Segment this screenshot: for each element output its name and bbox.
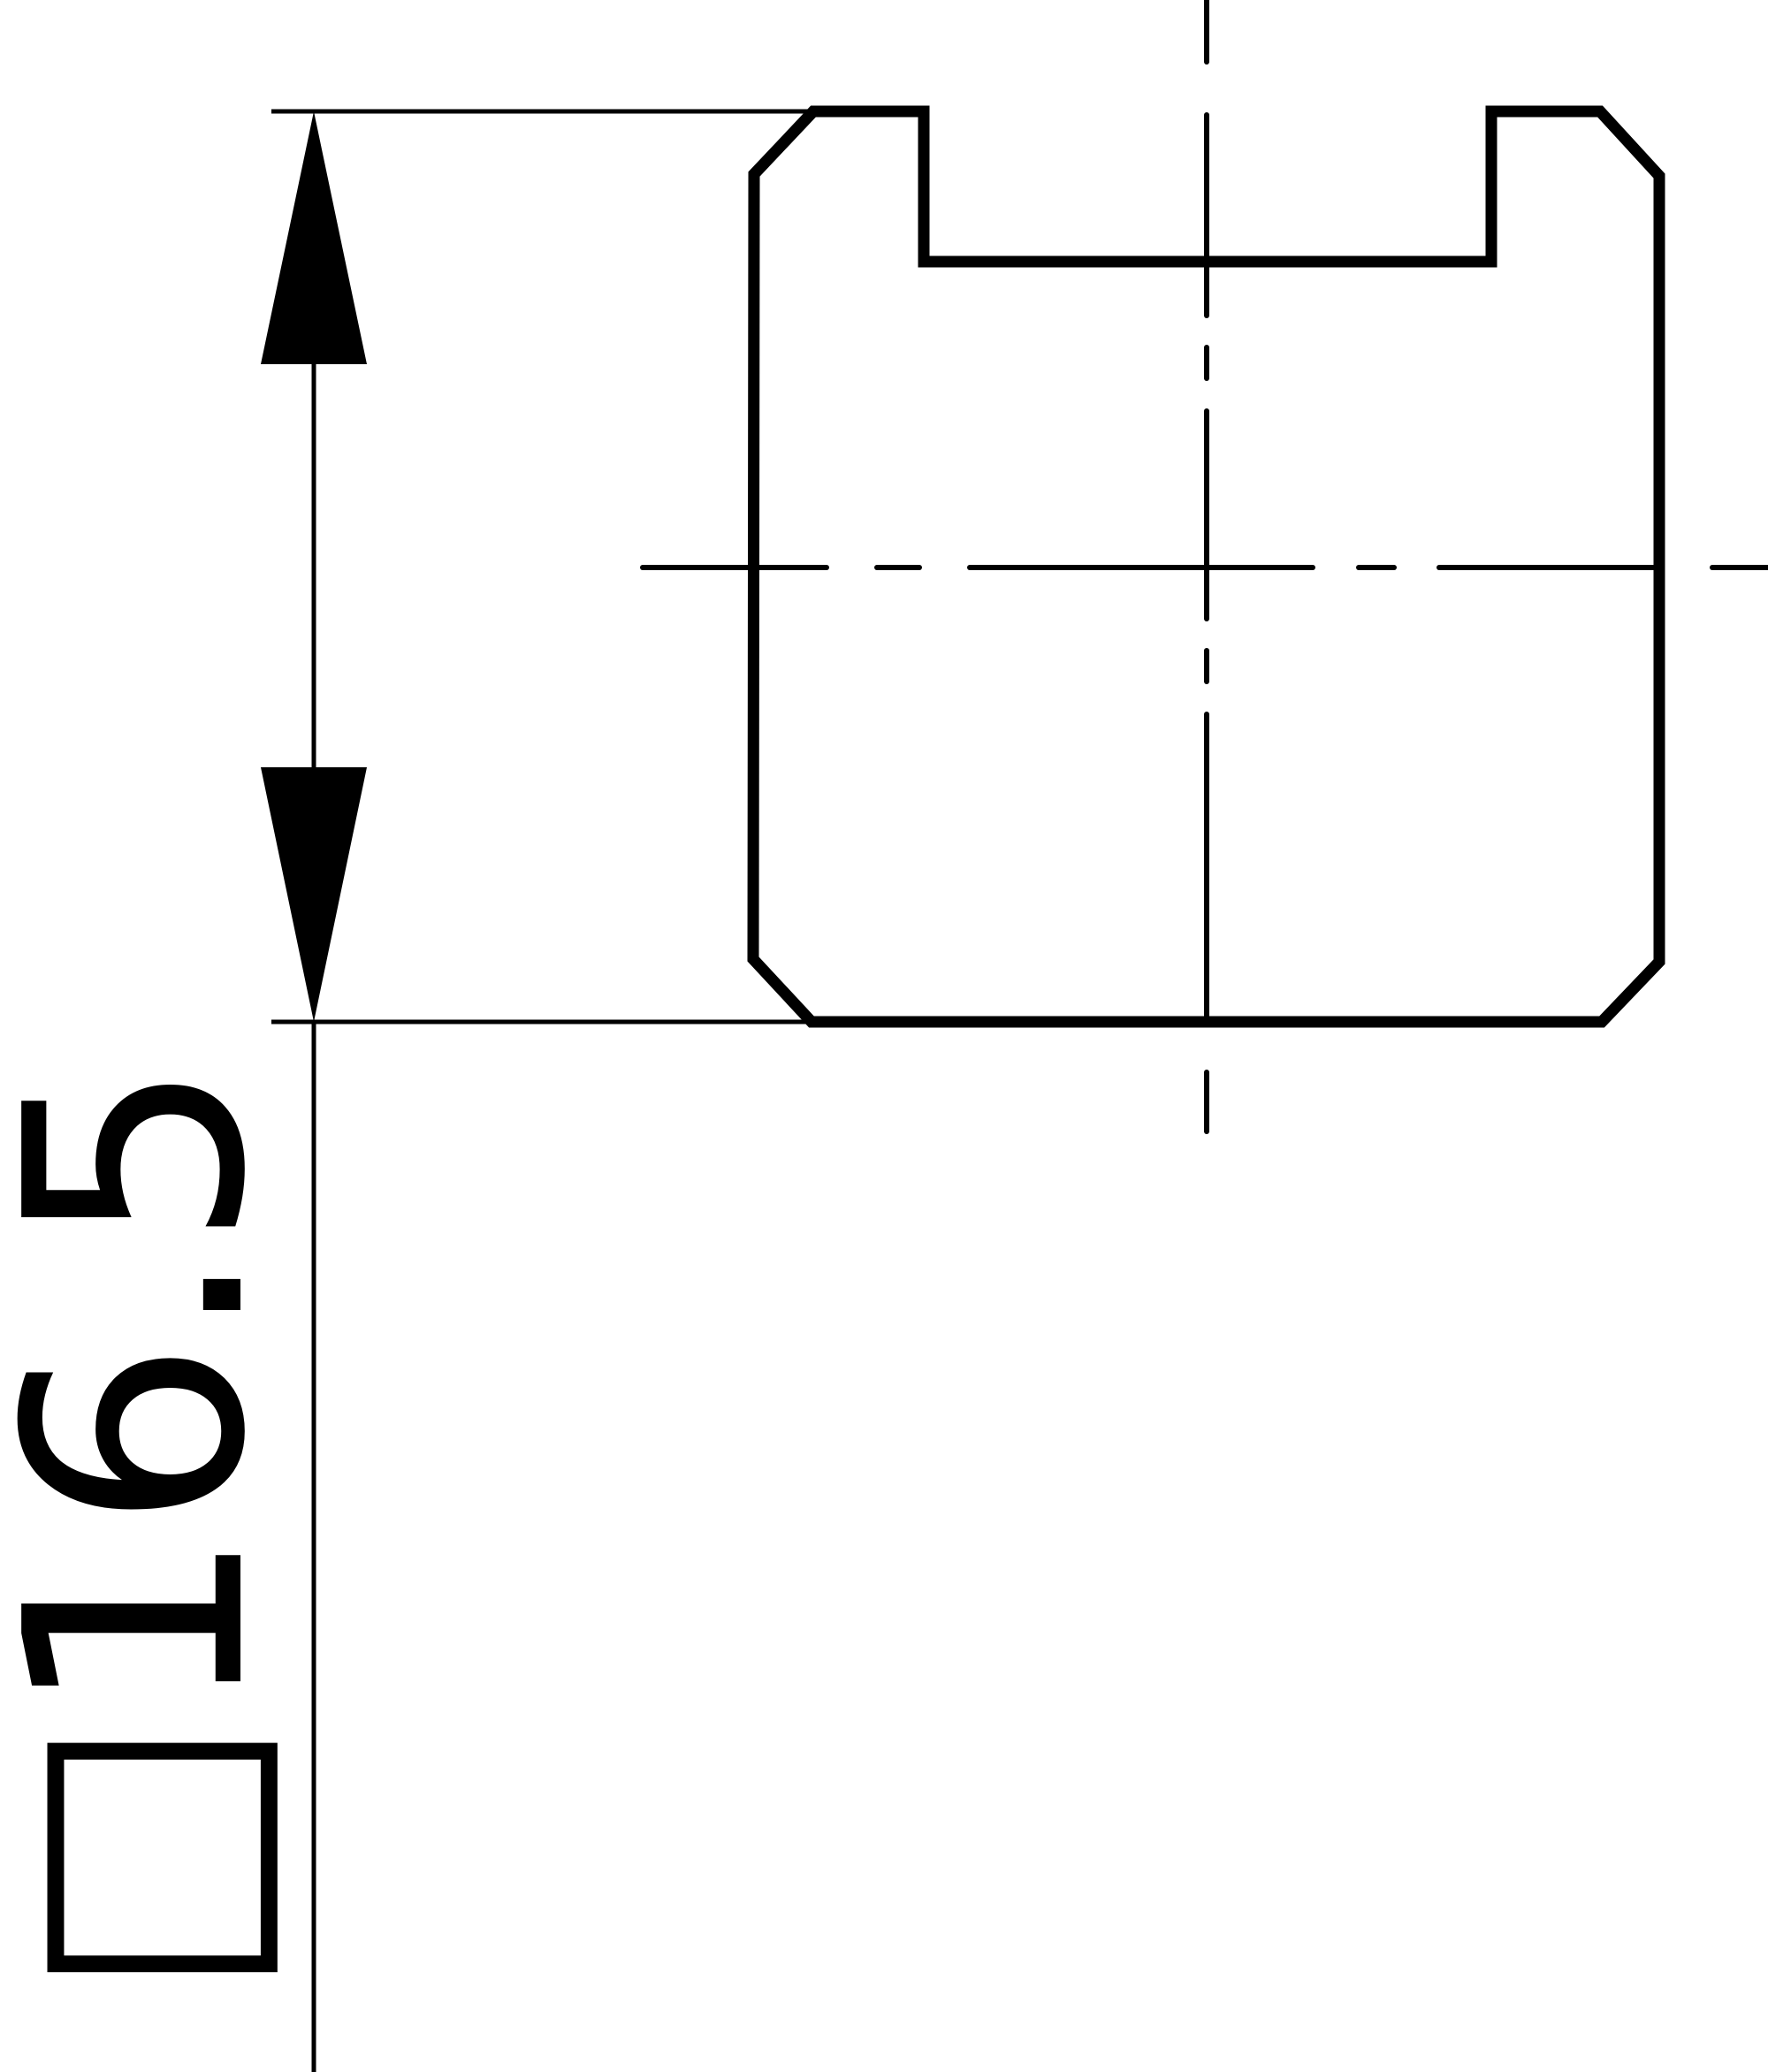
dimension-arrowhead-top-icon bbox=[261, 111, 367, 364]
technical-drawing-canvas: □16.5 bbox=[0, 0, 1768, 2072]
dimension-label: □16.5 bbox=[0, 1062, 312, 2000]
drawing-svg: □16.5 bbox=[0, 0, 1768, 2072]
dimension-arrowhead-bottom-icon bbox=[261, 767, 367, 1022]
